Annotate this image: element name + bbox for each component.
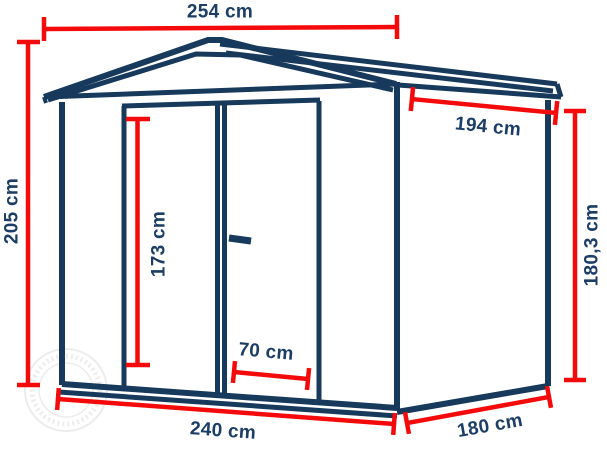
dim-label-roof-width: 254 cm [187,3,253,22]
shed-drawing [0,0,607,455]
dim-label-door-width: 70 cm [238,340,295,364]
roof-left-eave-tip [44,97,46,103]
dim-door-width-line [233,361,309,390]
door-handle [229,238,251,241]
door-frame-top [122,100,320,106]
dim-label-side-wall-height: 180,3 cm [583,204,602,287]
right-base-rail [397,386,548,412]
dim-label-base-width: 240 cm [189,419,256,443]
dim-door-height-line [126,119,150,365]
dim-label-door-height: 173 cm [150,211,169,277]
dim-label-total-height: 205 cm [3,178,22,244]
shed-dimension-diagram: 254 cm 205 cm 173 cm 194 cm 180,3 cm 70 … [0,0,607,455]
shed-outline [44,40,561,416]
